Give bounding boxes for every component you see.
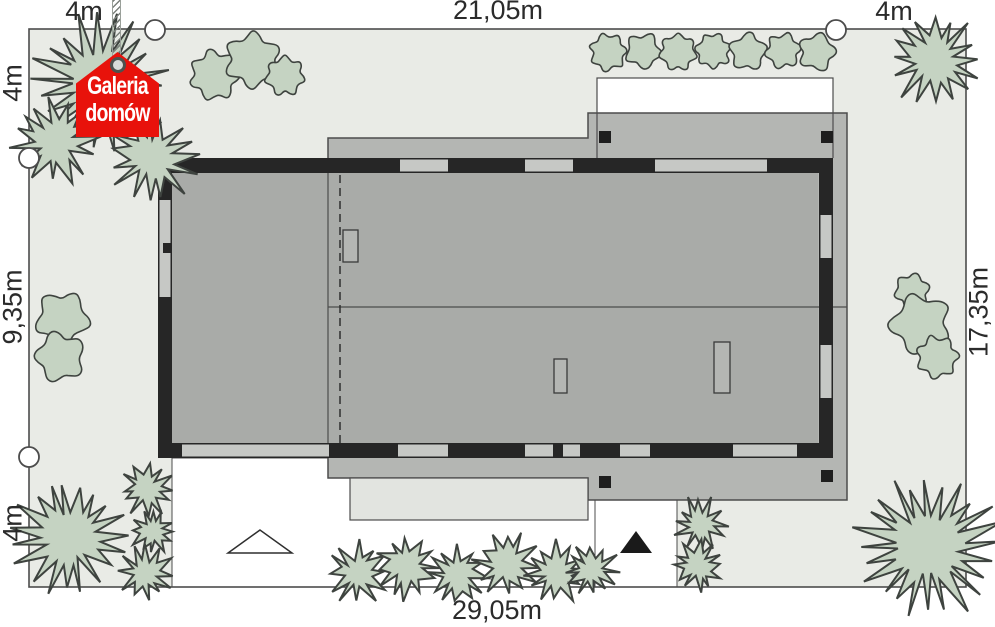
window [821, 215, 832, 258]
chimney-icon [343, 230, 358, 262]
window [400, 160, 448, 172]
dim-top-right: 4m [875, 0, 913, 25]
house-interior [172, 173, 818, 443]
logo-line2: domów [85, 100, 150, 127]
dim-right: 17,35m [966, 267, 993, 357]
dim-top-left: 4m [65, 0, 103, 25]
boundary-marker-icon [19, 447, 39, 467]
window [525, 160, 573, 172]
chimney-icon [554, 359, 567, 393]
window [525, 445, 553, 457]
logo-string [112, 0, 121, 56]
post-icon [599, 476, 611, 488]
window [620, 445, 650, 457]
window [655, 160, 767, 172]
dim-left-bottom: 4m [0, 504, 27, 542]
dim-left-middle: 9,35m [0, 269, 27, 344]
dim-bottom: 29,05m [452, 597, 542, 624]
front-terrace [350, 478, 588, 520]
window [733, 445, 797, 457]
site-plan: 4m 21,05m 4m 4m 9,35m 4m 17,35m 29,05m G… [0, 0, 995, 627]
window [398, 445, 448, 457]
post-icon [821, 470, 833, 482]
window [821, 345, 832, 398]
boundary-marker-icon [145, 20, 165, 40]
wall-right [819, 158, 833, 458]
post-icon [599, 131, 611, 143]
garage-door [182, 445, 329, 457]
window-mullion [163, 243, 172, 253]
window [563, 445, 580, 457]
dim-top-center: 21,05m [453, 0, 543, 24]
grommet-icon [110, 57, 126, 73]
chimney-icon [714, 342, 730, 393]
dim-left-top: 4m [0, 64, 27, 102]
boundary-marker-icon [19, 148, 39, 168]
post-icon [821, 131, 833, 143]
logo-line1: Galeria [85, 73, 150, 100]
boundary-marker-icon [826, 20, 846, 40]
